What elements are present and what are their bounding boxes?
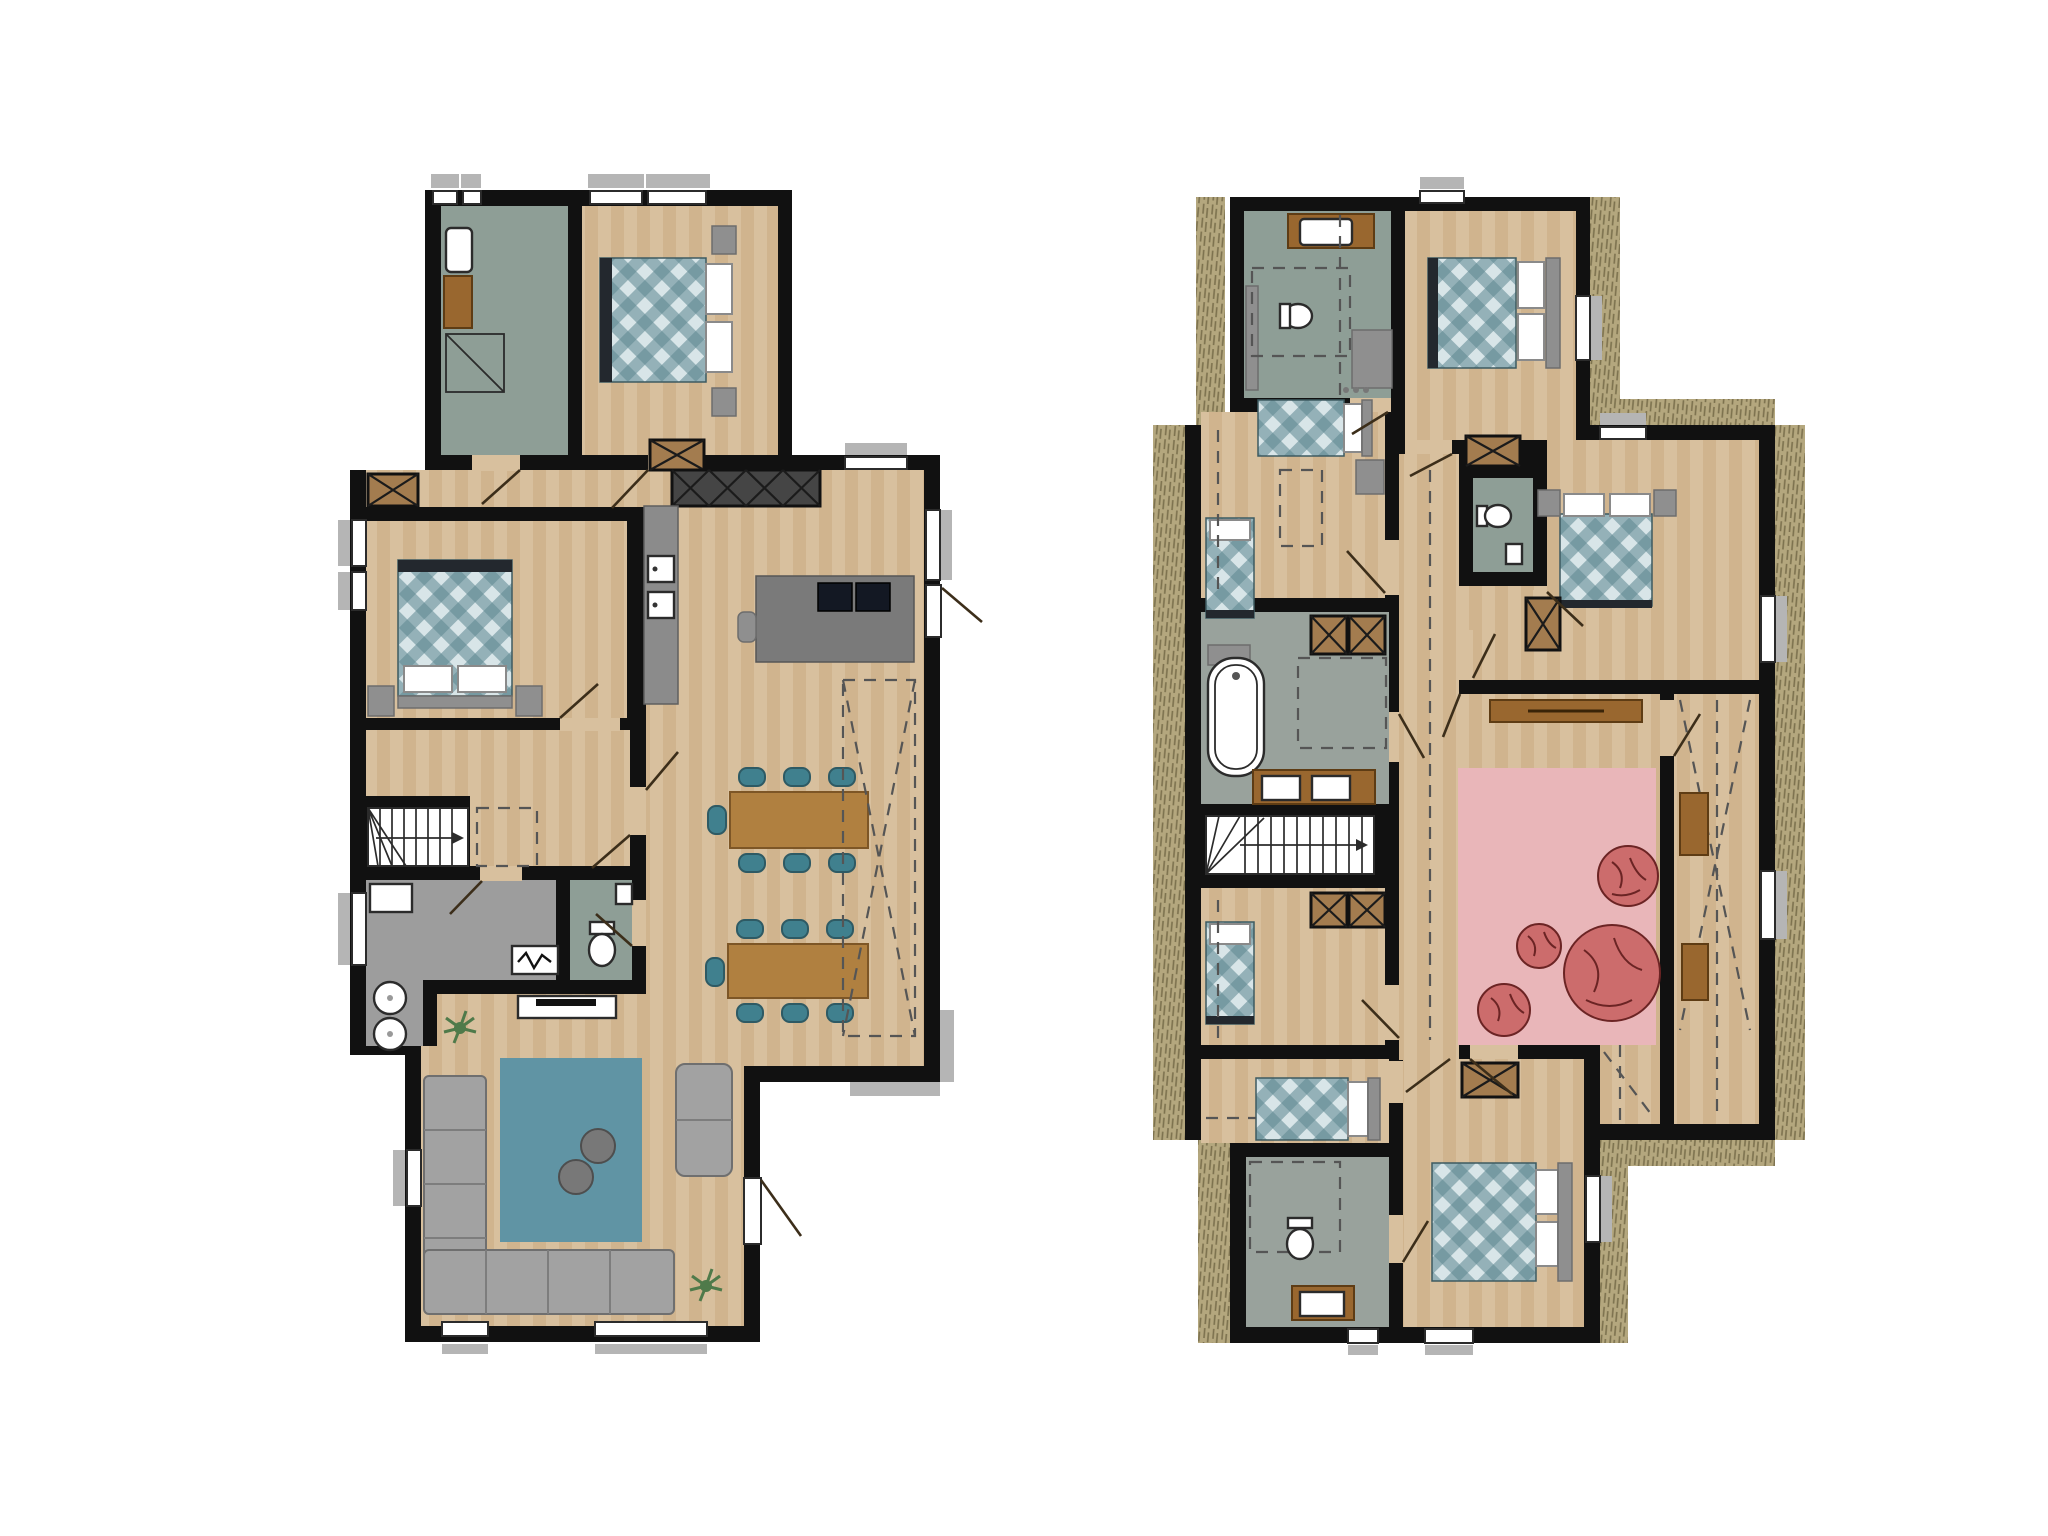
nightstand [712, 388, 736, 416]
window [845, 457, 907, 469]
sill [940, 510, 952, 580]
sill [1775, 871, 1787, 939]
dining-table [728, 944, 868, 998]
terrace-band [850, 1082, 940, 1096]
washer-dot [387, 995, 393, 1001]
hall-upper-floor [366, 470, 924, 507]
wardrobe-crossbox [1311, 616, 1347, 654]
vanity-cabinet [444, 276, 472, 328]
nightstand [516, 686, 542, 716]
pillow [706, 322, 732, 372]
dining-chair [827, 920, 853, 938]
window [407, 1150, 421, 1206]
utility-door-gap [480, 866, 522, 881]
bed-foot [1206, 610, 1254, 618]
window [1600, 427, 1646, 439]
bed-foot [1206, 1016, 1254, 1024]
appliance-box [370, 884, 412, 912]
window [352, 893, 366, 965]
mattress [1256, 1078, 1348, 1140]
floorplan-canvas [0, 0, 2048, 1536]
bathroomB-door-gap [1389, 712, 1399, 762]
headboard [1368, 1078, 1380, 1140]
dining-chair [827, 1004, 853, 1022]
pillow [1610, 494, 1650, 516]
dryer-dot [387, 1031, 393, 1037]
wardrobe-crossbox [650, 440, 704, 470]
dining-chair [782, 920, 808, 938]
roof-band [1775, 425, 1805, 1140]
sink-dark [856, 583, 890, 611]
washbasin [1262, 776, 1300, 800]
bed-foot [1428, 258, 1438, 368]
sill [1425, 1345, 1473, 1355]
bedroomA-door-gap [1405, 440, 1452, 454]
window [1576, 296, 1590, 360]
pillow [1348, 1082, 1368, 1136]
oven [648, 556, 674, 582]
washbasin [1312, 776, 1350, 800]
sill [1590, 296, 1602, 360]
bedroom2-door-gap [560, 718, 620, 731]
window [352, 572, 366, 610]
washbasin [1300, 219, 1352, 245]
dining-chair [706, 958, 724, 986]
living-exterior-door [744, 1178, 761, 1244]
nightstand [712, 226, 736, 254]
sill [1420, 177, 1464, 189]
window [1586, 1176, 1600, 1242]
pouf [559, 1160, 593, 1194]
dining-door-gap [630, 787, 646, 835]
shelf-item [1343, 387, 1349, 393]
wardrobe-crossbox [1526, 598, 1560, 650]
floorplan-svg [0, 0, 2048, 1536]
dining-chair [782, 1004, 808, 1022]
toilet-bowl [1287, 1229, 1313, 1259]
window [590, 191, 642, 204]
shelf-item [1363, 387, 1369, 393]
tall-cabinet-row [672, 470, 820, 506]
bed-foot [398, 560, 512, 572]
wc-door-gap [632, 900, 646, 946]
window [1420, 191, 1464, 203]
window [352, 520, 366, 566]
bathroomC-door-gap [1389, 1215, 1403, 1263]
wardrobe-crossbox [1311, 893, 1347, 927]
bathroom-door-gap [472, 455, 520, 471]
sill [1775, 596, 1787, 662]
pillow [1518, 262, 1544, 308]
storage-box [1680, 793, 1708, 855]
sill [442, 1344, 488, 1354]
pillow [1536, 1170, 1558, 1214]
roof-band [1196, 197, 1225, 425]
oven-knob [653, 603, 658, 608]
window [1425, 1329, 1473, 1343]
door-leaf [761, 1180, 801, 1236]
wardrobe-crossbox [1349, 893, 1385, 927]
storage-box [1682, 944, 1708, 1000]
sill [646, 174, 710, 188]
window [463, 191, 481, 204]
bathtub-drain [1232, 672, 1240, 680]
window [433, 191, 457, 204]
mattress [600, 258, 706, 382]
shelf-item [1353, 387, 1359, 393]
sill [461, 174, 481, 188]
sill [393, 1150, 405, 1206]
beanbag [1598, 846, 1658, 906]
pillow [404, 666, 452, 692]
pillow [1518, 314, 1544, 360]
hall-lower-floor [366, 730, 630, 796]
dining-chair [708, 806, 726, 834]
wardrobe-crossbox [1349, 616, 1385, 654]
headboard [1546, 258, 1560, 368]
tv [536, 999, 596, 1006]
beanbag [1478, 984, 1530, 1036]
corridor-door-gap [1660, 700, 1674, 756]
roof-band [1153, 425, 1185, 1140]
bedroomA-bed [1428, 258, 1560, 368]
sill [431, 174, 459, 188]
pillow [706, 264, 732, 314]
wardrobe-crossbox [1466, 436, 1520, 466]
washbasin [446, 228, 472, 272]
sill [845, 443, 907, 455]
oven-knob [653, 567, 658, 572]
shower-seat [1352, 330, 1392, 388]
sill [1600, 413, 1646, 425]
sill [588, 174, 644, 188]
pillow [1564, 494, 1604, 516]
roof-band [1198, 1140, 1230, 1343]
dining-chair [737, 920, 763, 938]
blue-rug [500, 1058, 642, 1242]
pillow [1210, 520, 1250, 540]
window [595, 1322, 707, 1336]
bar-stool [738, 612, 756, 642]
mattress [1258, 400, 1344, 456]
cooktop [818, 583, 852, 611]
dining-chair [739, 854, 765, 872]
bedroomD-door-gap [1389, 1061, 1403, 1103]
dining-table [730, 792, 868, 848]
ground-floor-plan [338, 174, 982, 1354]
pillow [1536, 1222, 1558, 1266]
toilet-bowl [589, 934, 615, 966]
dining-chair [784, 768, 810, 786]
sill [1600, 1176, 1612, 1242]
pillow [1344, 404, 1362, 452]
nightstand [1654, 490, 1676, 516]
kitchen-exterior-door [926, 585, 941, 637]
mattress [1428, 258, 1516, 368]
headboard [1558, 1163, 1572, 1281]
window [1761, 871, 1775, 939]
window [926, 510, 940, 580]
sill [338, 893, 350, 965]
bedroomE-door-gap [1470, 1045, 1518, 1059]
oven [648, 592, 674, 618]
wc-door-gap [1459, 630, 1473, 680]
door-leaf [942, 588, 982, 622]
sill [338, 520, 350, 566]
sill [1348, 1345, 1378, 1355]
window [442, 1322, 488, 1336]
sill [338, 572, 350, 610]
toilet-tank [1280, 304, 1290, 328]
washbasin [1300, 1292, 1344, 1316]
window [1761, 596, 1775, 662]
headboard [398, 696, 512, 708]
toilet-bowl [1485, 505, 1511, 527]
window [648, 191, 706, 204]
sill [595, 1344, 707, 1354]
toilet-tank [1288, 1218, 1312, 1228]
mini-sink [616, 884, 632, 904]
roof-band [1600, 1140, 1775, 1166]
pouf [581, 1129, 615, 1163]
pillow [458, 666, 506, 692]
dining-chair [737, 1004, 763, 1022]
terrace-band [940, 1010, 954, 1082]
bed-foot [1560, 600, 1652, 608]
bed-foot [600, 258, 612, 382]
window [1348, 1329, 1378, 1343]
upper-floor-plan [1153, 177, 1805, 1355]
wardrobe-crossbox [368, 474, 418, 506]
mattress [1432, 1163, 1536, 1281]
mini-sink [1506, 544, 1522, 564]
bedroomB-door-gap [1385, 540, 1399, 595]
nightstand [1538, 490, 1560, 516]
desk [1356, 460, 1384, 494]
mattress [1560, 514, 1652, 606]
dining-chair [784, 854, 810, 872]
dining-chair [739, 768, 765, 786]
nightstand [368, 686, 394, 716]
pillow [1210, 924, 1250, 944]
